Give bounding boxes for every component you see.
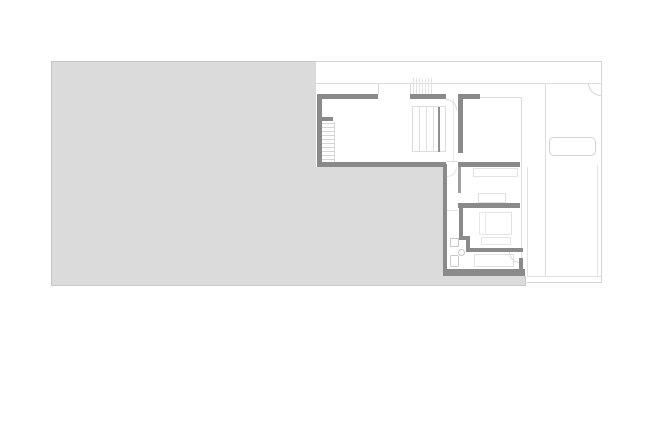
floor-plan-canvas xyxy=(0,0,652,435)
hall-threshold-line xyxy=(447,161,458,162)
window-tick-left xyxy=(378,84,379,94)
wall-row-bottom-left xyxy=(317,162,446,167)
stair-mid-tread-3 xyxy=(433,107,434,151)
stair-mid-rail xyxy=(438,107,440,152)
wall-hall-lower xyxy=(458,167,461,193)
slab-edge-bottom xyxy=(527,276,601,277)
window-tick-right xyxy=(410,84,411,94)
site-boundary-top xyxy=(316,61,602,62)
skylight-hatch-line-4 xyxy=(425,78,426,94)
stair-left-treads-line-1 xyxy=(322,127,334,128)
wall-top-b xyxy=(410,94,446,99)
wardrobe-room-1 xyxy=(473,168,518,177)
floor-below-outline xyxy=(316,83,602,84)
stair-left-treads-line-0 xyxy=(322,123,334,124)
wall-mid-bedrooms xyxy=(458,203,520,208)
car-outline xyxy=(549,137,596,156)
skylight-hatch-line-2 xyxy=(419,78,420,94)
stair-left-treads-line-8 xyxy=(322,155,334,156)
wall-bottom xyxy=(443,269,525,276)
wall-right-col-upper xyxy=(458,94,463,153)
skylight-hatch-line-3 xyxy=(422,78,423,94)
bath-sink xyxy=(458,249,465,256)
wall-room-3-top xyxy=(466,248,523,252)
site-boundary-right xyxy=(601,61,602,283)
wall-row-bottom-right xyxy=(458,162,520,167)
driveway-left-edge xyxy=(527,167,528,276)
bed-room-1 xyxy=(478,193,506,203)
stair-left-treads-line-6 xyxy=(322,147,334,148)
walkway-line xyxy=(545,83,546,276)
stair-left-treads-line-9 xyxy=(322,159,334,160)
wall-door-stub xyxy=(519,258,523,269)
stair-mid-tread-2 xyxy=(426,107,427,151)
skylight-hatch-line-5 xyxy=(428,78,429,94)
stair-left-treads-line-2 xyxy=(322,131,334,132)
pillow-room-2 xyxy=(479,212,486,235)
stair-left-treads-line-7 xyxy=(322,151,334,152)
bath-vanity xyxy=(450,238,459,247)
room-tr-outline-top xyxy=(480,97,521,98)
bath-toilet xyxy=(450,255,459,267)
stair-left-treads-line-5 xyxy=(322,143,334,144)
stair-left-treads-line-4 xyxy=(322,139,334,140)
skylight-hatch-line-0 xyxy=(413,78,414,94)
skylight-hatch-line-1 xyxy=(416,78,417,94)
wall-top-a xyxy=(317,94,378,99)
stair-left-treads-line-3 xyxy=(322,135,334,136)
stair-left-edge xyxy=(334,122,335,162)
driveway-area xyxy=(527,62,602,283)
room-tr-outline-right xyxy=(521,97,522,260)
house-right-edge-line xyxy=(597,165,598,276)
wall-left xyxy=(317,94,322,167)
skylight-hatch-line-6 xyxy=(431,78,432,94)
bench-room-2 xyxy=(481,237,511,245)
wall-bedcol-left xyxy=(443,164,447,276)
bed-room-3 xyxy=(474,254,514,267)
stair-mid-box xyxy=(412,106,446,152)
hall-door-line xyxy=(447,210,458,211)
stair-mid-tread-1 xyxy=(419,107,420,151)
site-boundary-bottom xyxy=(527,282,602,283)
wall-stair-stub xyxy=(317,117,333,121)
